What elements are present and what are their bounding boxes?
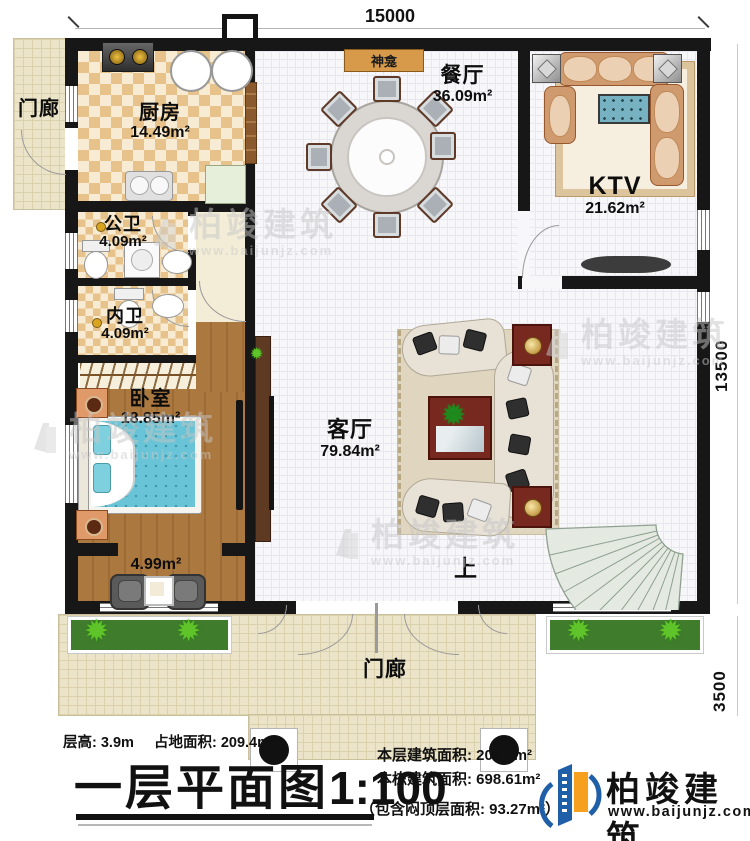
pillow xyxy=(508,433,532,455)
wall xyxy=(245,212,255,322)
plant-icon: ✹ xyxy=(441,398,466,433)
pillow xyxy=(438,335,460,355)
pillow xyxy=(466,498,492,523)
door-opening xyxy=(65,128,78,170)
right-dimension-line xyxy=(737,616,738,716)
room-label-balcony: 4.99m² xyxy=(118,556,194,574)
top-dimension-label: 15000 xyxy=(340,6,440,27)
room-label-dining: 餐厅 36.09m² xyxy=(415,64,510,105)
speaker-cone xyxy=(658,59,678,79)
window xyxy=(697,292,710,322)
lamp-icon xyxy=(524,499,542,517)
stair-up-text: 上 xyxy=(450,556,482,582)
title-underline xyxy=(76,814,374,820)
lamp-icon xyxy=(85,518,103,536)
stove xyxy=(102,42,154,72)
dimension-tick xyxy=(67,16,79,28)
toilet-tank xyxy=(114,288,144,300)
top-dimension-line xyxy=(75,28,705,29)
left-porch-floor xyxy=(13,38,67,210)
spiral-staircase xyxy=(538,524,700,610)
sink-basin xyxy=(130,176,149,195)
watermark-logo-icon xyxy=(28,417,62,457)
wall xyxy=(222,543,247,556)
room-label-living: 客厅 79.84m² xyxy=(295,418,405,461)
plant-icon: ✹ xyxy=(84,614,109,649)
closet xyxy=(80,363,196,389)
sofa-cushion xyxy=(563,56,597,82)
window xyxy=(697,210,710,250)
burner-icon xyxy=(109,49,125,65)
kitchen-sink xyxy=(125,171,173,201)
pillow xyxy=(462,329,487,353)
bedroom-entry-floor xyxy=(196,322,245,392)
shrine-box: 神龛 xyxy=(344,49,424,72)
lamp-icon xyxy=(85,396,103,414)
living-name: 客厅 xyxy=(295,418,405,443)
room-label-kitchen: 厨房 14.49m² xyxy=(115,102,205,142)
dining-chair xyxy=(430,132,456,160)
room-label-inner-bath: 内卫 4.09m² xyxy=(86,306,164,343)
room-label-porch-left: 门廊 xyxy=(14,98,64,120)
room-label-public-bath: 公卫 4.09m² xyxy=(84,214,162,251)
floor-area-stat: 本层建筑面积: 209.4m² xyxy=(377,744,532,765)
table-top xyxy=(150,582,164,596)
ktv-tv xyxy=(581,256,671,273)
wall xyxy=(78,543,118,556)
speaker xyxy=(532,54,561,83)
speaker xyxy=(653,54,682,83)
plan-title-text: 一层平面图 xyxy=(74,762,329,815)
basin xyxy=(162,250,192,274)
dining-area: 36.09m² xyxy=(415,88,510,106)
room-label-ktv: KTV 21.62m² xyxy=(565,172,665,218)
pillow xyxy=(93,463,111,493)
ktv-armchair xyxy=(544,86,576,144)
porch-bottom-name: 门廊 xyxy=(352,658,418,682)
brand-url: www.baijunjz.com xyxy=(608,804,750,820)
ktv-name: KTV xyxy=(565,172,665,200)
window xyxy=(65,425,78,503)
floor-plan: 15000 13500 3500 ✹ ✹ ✹ ✹ xyxy=(0,0,750,841)
stair-up-label: 上 xyxy=(450,556,482,582)
counter-circle xyxy=(170,50,212,92)
entry-door-mullion xyxy=(375,603,378,653)
building-area-stat: 本栋建筑面积: 698.61m² xyxy=(377,768,540,789)
bath-door-opening xyxy=(188,290,196,324)
plant-icon: ✹ xyxy=(566,614,591,649)
window xyxy=(65,86,78,122)
attic-area-note: （包含闷顶层面积: 93.27m²） xyxy=(360,798,560,819)
bath-door-opening xyxy=(188,216,196,250)
window xyxy=(65,300,78,332)
bedroom-name: 卧室 xyxy=(103,388,198,410)
window xyxy=(65,233,78,269)
speaker-cone xyxy=(537,59,557,79)
sofa-top xyxy=(400,317,509,380)
ktv-sofa-right xyxy=(650,84,684,186)
dimension-tick xyxy=(697,16,709,28)
lamp-icon xyxy=(524,337,542,355)
brand-name: 柏竣建筑 xyxy=(606,762,750,841)
sofa-cushion xyxy=(654,91,680,133)
chair-seat xyxy=(174,580,198,602)
pillow xyxy=(442,502,464,522)
dining-table-center xyxy=(379,149,395,165)
wall xyxy=(518,51,530,211)
bed xyxy=(88,416,202,514)
shrine-label: 神龛 xyxy=(371,51,397,70)
right-dimension-line xyxy=(737,44,738,604)
right-lower-dimension-label: 3500 xyxy=(710,640,730,712)
counter-circle xyxy=(211,50,253,92)
washer-drum xyxy=(131,249,153,271)
kitchen-name: 厨房 xyxy=(115,102,205,124)
balcony-area: 4.99m² xyxy=(118,556,194,574)
dining-name: 餐厅 xyxy=(415,64,510,88)
ktv-coffee-table xyxy=(598,94,650,124)
plant-icon: ✹ xyxy=(250,344,263,364)
nightstand xyxy=(76,510,108,540)
title-underline-thin xyxy=(78,824,372,826)
ktv-area: 21.62m² xyxy=(565,200,665,218)
side-table xyxy=(512,486,552,528)
sink-basin xyxy=(150,176,169,195)
inner-bath-name: 内卫 xyxy=(86,306,164,326)
pillow xyxy=(412,331,438,356)
kitchen-area: 14.49m² xyxy=(115,124,205,142)
pillow xyxy=(505,397,529,420)
kitchen-sliding-door xyxy=(245,82,257,164)
toilet-bowl xyxy=(84,251,108,279)
dining-chair xyxy=(373,212,401,238)
public-bath-name: 公卫 xyxy=(84,214,162,234)
bedroom-tv xyxy=(236,400,243,510)
plant-icon: ✹ xyxy=(176,614,201,649)
living-tv xyxy=(269,396,274,510)
sofa-cushion xyxy=(549,95,571,137)
wall xyxy=(78,355,196,363)
pillow xyxy=(93,425,111,455)
balcony-table xyxy=(144,576,174,606)
porch-left-name: 门廊 xyxy=(14,98,64,120)
room-label-bedroom: 卧室 18.85m² xyxy=(103,388,198,428)
brand-logo-icon xyxy=(536,760,604,834)
plant-icon: ✹ xyxy=(658,614,683,649)
dining-chair xyxy=(373,76,401,102)
sofa-bottom xyxy=(400,476,512,537)
side-table xyxy=(512,324,552,366)
dining-chair xyxy=(306,143,332,171)
bedroom-area: 18.85m² xyxy=(103,410,198,428)
right-upper-dimension-label: 13500 xyxy=(712,296,732,392)
wall xyxy=(78,278,188,286)
pillow xyxy=(415,494,440,518)
public-bath-area: 4.09m² xyxy=(84,234,162,251)
living-area: 79.84m² xyxy=(295,443,405,461)
chair-seat xyxy=(118,580,142,602)
inner-bath-area: 4.09m² xyxy=(86,326,164,343)
burner-icon xyxy=(132,49,148,65)
room-label-porch-bottom: 门廊 xyxy=(352,658,418,682)
sofa-cushion xyxy=(598,56,632,82)
fridge xyxy=(205,165,246,204)
